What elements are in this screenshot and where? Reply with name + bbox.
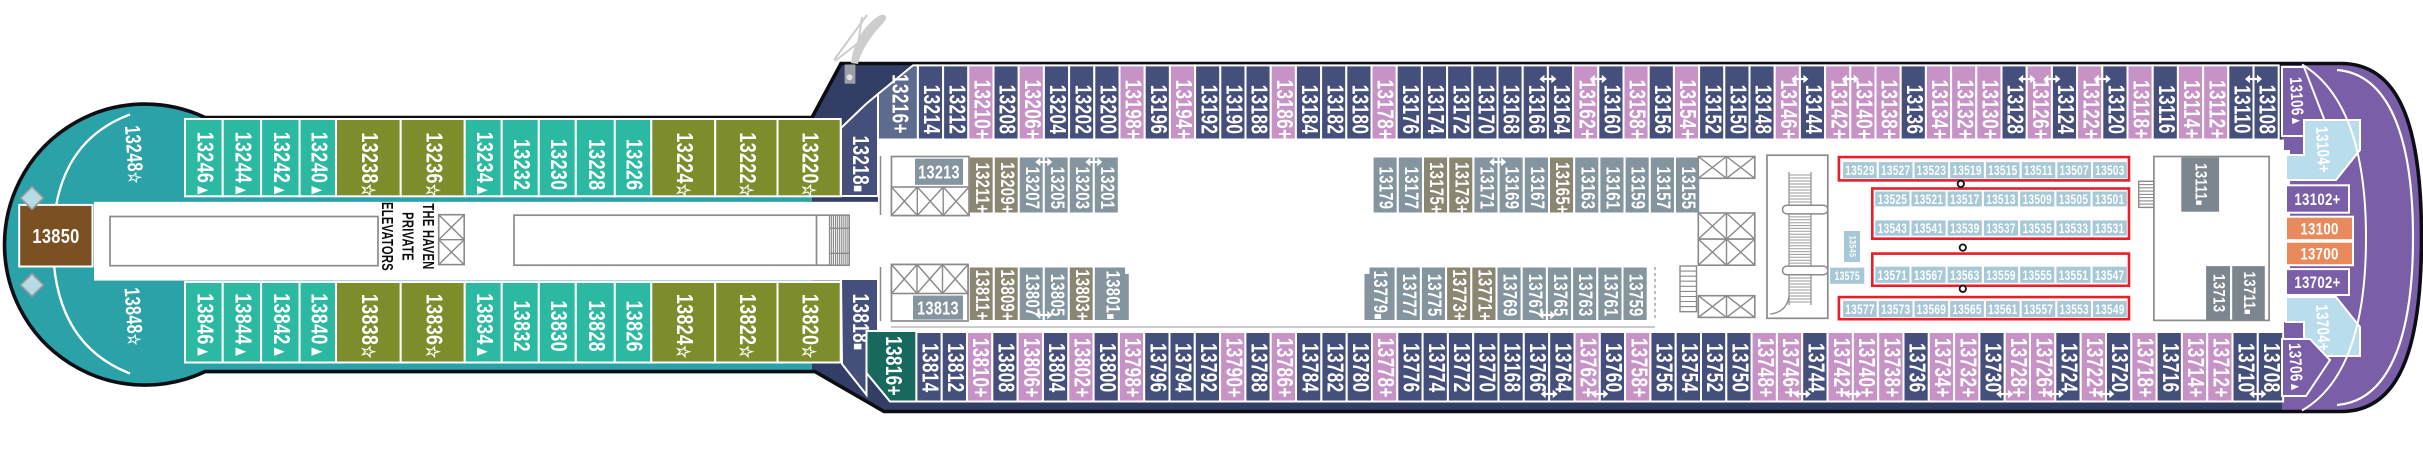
- svg-text:13543: 13543: [1878, 220, 1907, 236]
- svg-text:13523: 13523: [1917, 163, 1946, 179]
- svg-text:13838☆: 13838☆: [356, 294, 382, 359]
- svg-text:13150: 13150: [1725, 85, 1750, 134]
- svg-text:13710: 13710: [2233, 343, 2258, 392]
- svg-text:13824☆: 13824☆: [671, 294, 697, 359]
- svg-text:13165+: 13165+: [1552, 162, 1575, 214]
- svg-text:13756: 13756: [1651, 343, 1676, 392]
- svg-text:13798+: 13798+: [1119, 338, 1144, 398]
- svg-text:13738+: 13738+: [1879, 338, 1904, 398]
- svg-text:13561: 13561: [1988, 301, 2017, 317]
- svg-text:13167: 13167: [1526, 167, 1549, 210]
- svg-text:13770: 13770: [1474, 343, 1499, 392]
- svg-text:13521: 13521: [1914, 191, 1943, 207]
- svg-text:13126+: 13126+: [2027, 80, 2052, 140]
- svg-text:13767: 13767: [1524, 274, 1547, 317]
- svg-text:13809+: 13809+: [996, 269, 1019, 321]
- svg-text:13170: 13170: [1473, 85, 1498, 134]
- svg-text:13702+: 13702+: [2294, 274, 2340, 293]
- svg-text:13832: 13832: [508, 300, 534, 351]
- svg-text:ELEVATORS: ELEVATORS: [379, 202, 396, 271]
- svg-text:13711■: 13711■: [2239, 272, 2258, 315]
- svg-text:13804: 13804: [1044, 343, 1069, 393]
- svg-text:13511: 13511: [2024, 163, 2053, 179]
- svg-text:13166: 13166: [1523, 85, 1548, 134]
- svg-text:13763: 13763: [1575, 274, 1598, 317]
- svg-text:13160: 13160: [1599, 85, 1624, 134]
- svg-text:13208: 13208: [994, 85, 1019, 134]
- svg-text:13136: 13136: [1901, 85, 1926, 134]
- svg-text:13242▲: 13242▲: [268, 132, 294, 198]
- svg-text:13212: 13212: [944, 85, 969, 134]
- svg-text:13513: 13513: [1986, 191, 2015, 207]
- svg-text:13844▲: 13844▲: [230, 293, 256, 359]
- svg-text:13549: 13549: [2095, 301, 2124, 317]
- svg-text:13575: 13575: [1834, 271, 1859, 283]
- svg-text:13111■: 13111■: [2191, 163, 2210, 206]
- svg-text:13174: 13174: [1422, 85, 1447, 135]
- svg-text:13130+: 13130+: [1977, 80, 2002, 140]
- svg-text:13182: 13182: [1322, 85, 1347, 134]
- svg-text:13765: 13765: [1549, 274, 1572, 317]
- svg-text:13122+: 13122+: [2078, 80, 2103, 140]
- svg-text:PRIVATE: PRIVATE: [399, 212, 416, 261]
- svg-text:13734+: 13734+: [1929, 338, 1954, 398]
- svg-text:13716: 13716: [2157, 343, 2182, 392]
- svg-text:13805: 13805: [1046, 274, 1069, 317]
- svg-text:13238☆: 13238☆: [356, 132, 382, 197]
- svg-text:13772: 13772: [1448, 343, 1473, 392]
- svg-text:13571: 13571: [1878, 267, 1907, 283]
- svg-text:13555: 13555: [2023, 267, 2052, 283]
- svg-text:13803+: 13803+: [1071, 269, 1094, 321]
- svg-text:13720: 13720: [2107, 343, 2132, 392]
- svg-text:13102+: 13102+: [2294, 191, 2340, 210]
- svg-text:13175+: 13175+: [1426, 162, 1449, 214]
- svg-text:13563: 13563: [1950, 267, 1979, 283]
- svg-text:13134+: 13134+: [1926, 80, 1951, 140]
- svg-text:13766: 13766: [1524, 343, 1549, 392]
- svg-text:13176: 13176: [1397, 85, 1422, 134]
- svg-text:13836☆: 13836☆: [421, 294, 447, 359]
- svg-text:13802+: 13802+: [1069, 338, 1094, 398]
- svg-text:13830: 13830: [545, 300, 571, 351]
- svg-text:13200: 13200: [1095, 85, 1120, 134]
- svg-text:13525: 13525: [1878, 191, 1907, 207]
- svg-text:13531: 13531: [2095, 220, 2124, 236]
- svg-text:13204: 13204: [1044, 85, 1069, 135]
- svg-text:13224☆: 13224☆: [671, 132, 697, 197]
- svg-text:13232: 13232: [508, 139, 534, 190]
- svg-text:13773+: 13773+: [1449, 269, 1472, 321]
- svg-text:13577: 13577: [1845, 301, 1874, 317]
- svg-text:13168: 13168: [1498, 85, 1523, 134]
- svg-text:13834▲: 13834▲: [471, 293, 497, 359]
- svg-text:13155: 13155: [1678, 167, 1701, 210]
- svg-text:13801■: 13801■: [1102, 271, 1125, 320]
- svg-text:13718+: 13718+: [2132, 338, 2157, 398]
- svg-text:13775: 13775: [1423, 274, 1446, 317]
- svg-text:13213: 13213: [918, 162, 960, 183]
- svg-text:13750: 13750: [1727, 343, 1752, 392]
- svg-text:13724: 13724: [2056, 343, 2081, 393]
- svg-text:13814: 13814: [917, 343, 942, 393]
- svg-text:13846▲: 13846▲: [192, 293, 218, 359]
- svg-text:13188: 13188: [1246, 85, 1271, 134]
- svg-text:13138+: 13138+: [1876, 80, 1901, 140]
- svg-text:13736: 13736: [1904, 343, 1929, 392]
- svg-text:13740+: 13740+: [1853, 338, 1878, 398]
- svg-text:13120: 13120: [2103, 85, 2128, 134]
- svg-text:13240▲: 13240▲: [306, 132, 332, 198]
- svg-text:13140+: 13140+: [1851, 80, 1876, 140]
- svg-text:13196: 13196: [1145, 85, 1170, 134]
- svg-text:13177: 13177: [1400, 167, 1423, 210]
- svg-text:13553: 13553: [2059, 301, 2088, 317]
- svg-text:13746+: 13746+: [1778, 338, 1803, 398]
- svg-text:13764: 13764: [1550, 343, 1575, 393]
- svg-text:13146+: 13146+: [1775, 80, 1800, 140]
- svg-text:13535: 13535: [2023, 220, 2052, 236]
- svg-text:13186+: 13186+: [1271, 80, 1296, 140]
- svg-text:13790+: 13790+: [1221, 338, 1246, 398]
- svg-text:13230: 13230: [545, 139, 571, 190]
- svg-text:13569: 13569: [1917, 301, 1946, 317]
- svg-text:13726+: 13726+: [2031, 338, 2056, 398]
- svg-text:13168: 13168: [1499, 343, 1524, 392]
- svg-text:13505: 13505: [2059, 191, 2088, 207]
- svg-text:13539: 13539: [1950, 220, 1979, 236]
- svg-text:13744: 13744: [1803, 343, 1828, 393]
- svg-text:13545: 13545: [1847, 236, 1857, 258]
- svg-text:13507: 13507: [2059, 163, 2088, 179]
- svg-text:13816+: 13816+: [880, 336, 905, 396]
- svg-text:13114+: 13114+: [2178, 80, 2203, 139]
- svg-text:13533: 13533: [2059, 220, 2088, 236]
- svg-text:13184: 13184: [1296, 85, 1321, 135]
- svg-text:13840▲: 13840▲: [306, 293, 332, 359]
- svg-text:13771+: 13771+: [1474, 269, 1497, 321]
- svg-text:13728+: 13728+: [2005, 338, 2030, 398]
- svg-text:13826: 13826: [621, 300, 647, 351]
- svg-text:13234▲: 13234▲: [471, 132, 497, 198]
- svg-text:13777: 13777: [1398, 274, 1421, 317]
- svg-text:13180: 13180: [1347, 85, 1372, 134]
- svg-text:13162+: 13162+: [1574, 80, 1599, 140]
- svg-text:13118+: 13118+: [2128, 80, 2153, 139]
- svg-text:13842▲: 13842▲: [268, 293, 294, 359]
- svg-text:13808: 13808: [993, 343, 1018, 392]
- svg-text:13754: 13754: [1676, 343, 1701, 393]
- svg-text:13761: 13761: [1600, 274, 1623, 317]
- svg-text:13228: 13228: [583, 139, 609, 190]
- svg-text:13529: 13529: [1845, 163, 1874, 179]
- svg-text:13788: 13788: [1246, 343, 1271, 392]
- svg-text:13171: 13171: [1476, 167, 1499, 210]
- svg-text:13205: 13205: [1046, 167, 1069, 210]
- svg-text:13762+: 13762+: [1575, 338, 1600, 398]
- svg-text:13108: 13108: [2254, 85, 2279, 134]
- svg-text:13194+: 13194+: [1170, 80, 1195, 140]
- svg-text:13157: 13157: [1652, 167, 1675, 210]
- svg-text:13565: 13565: [1952, 301, 1981, 317]
- svg-text:13760: 13760: [1600, 343, 1625, 392]
- svg-text:13515: 13515: [1988, 163, 2017, 179]
- svg-text:13758+: 13758+: [1626, 338, 1651, 398]
- svg-text:13759: 13759: [1625, 274, 1648, 317]
- svg-text:13236☆: 13236☆: [421, 132, 447, 197]
- svg-text:13244▲: 13244▲: [230, 132, 256, 198]
- svg-text:13811+: 13811+: [971, 270, 994, 321]
- svg-text:13796: 13796: [1145, 343, 1170, 392]
- svg-text:13712+: 13712+: [2208, 338, 2233, 398]
- svg-text:13210+: 13210+: [969, 80, 994, 140]
- svg-text:13742+: 13742+: [1828, 338, 1853, 398]
- svg-text:13714+: 13714+: [2182, 338, 2207, 398]
- svg-text:13203: 13203: [1071, 167, 1094, 210]
- svg-text:13541: 13541: [1914, 220, 1943, 236]
- svg-text:13148: 13148: [1750, 85, 1775, 134]
- svg-text:13806+: 13806+: [1018, 338, 1043, 398]
- svg-text:13537: 13537: [1986, 220, 2015, 236]
- svg-text:13828: 13828: [583, 300, 609, 351]
- svg-text:13202: 13202: [1070, 85, 1095, 134]
- svg-text:13850: 13850: [32, 224, 79, 247]
- svg-text:13179: 13179: [1375, 167, 1398, 210]
- svg-text:13547: 13547: [2095, 267, 2124, 283]
- svg-text:13813: 13813: [917, 298, 959, 319]
- svg-text:13246▲: 13246▲: [192, 132, 218, 198]
- svg-text:13128: 13128: [2002, 85, 2027, 134]
- svg-text:13730: 13730: [1980, 343, 2005, 392]
- svg-text:13509: 13509: [2023, 191, 2052, 207]
- svg-text:13154+: 13154+: [1674, 80, 1699, 140]
- svg-text:13110: 13110: [2229, 85, 2254, 133]
- svg-text:13152: 13152: [1700, 85, 1725, 134]
- svg-text:13100: 13100: [2300, 220, 2338, 239]
- svg-text:13800: 13800: [1094, 343, 1119, 392]
- svg-text:13190: 13190: [1221, 85, 1246, 134]
- svg-text:13820☆: 13820☆: [797, 294, 823, 359]
- svg-text:13124: 13124: [2052, 85, 2077, 135]
- svg-text:13527: 13527: [1881, 163, 1910, 179]
- svg-text:13222☆: 13222☆: [734, 132, 760, 197]
- svg-text:13201: 13201: [1096, 167, 1119, 210]
- svg-text:13551: 13551: [2059, 267, 2088, 283]
- svg-text:13132+: 13132+: [1952, 80, 1977, 140]
- svg-text:13164: 13164: [1548, 85, 1573, 135]
- svg-text:13142+: 13142+: [1826, 80, 1851, 140]
- svg-text:13732+: 13732+: [1955, 338, 1980, 398]
- svg-text:13810+: 13810+: [968, 338, 993, 398]
- svg-text:13207: 13207: [1021, 167, 1044, 210]
- svg-text:13159: 13159: [1627, 167, 1650, 210]
- svg-text:13220☆: 13220☆: [797, 132, 823, 197]
- svg-text:13700: 13700: [2300, 245, 2338, 264]
- svg-text:THE HAVEN: THE HAVEN: [419, 203, 436, 269]
- svg-text:13748+: 13748+: [1752, 338, 1777, 398]
- svg-text:13752: 13752: [1702, 343, 1727, 392]
- svg-text:13214: 13214: [918, 85, 943, 135]
- svg-text:13216+: 13216+: [887, 74, 912, 134]
- svg-text:13782: 13782: [1322, 343, 1347, 392]
- svg-text:13192: 13192: [1196, 85, 1221, 134]
- svg-text:13198+: 13198+: [1120, 80, 1145, 140]
- svg-text:13169: 13169: [1501, 167, 1524, 210]
- svg-text:13172: 13172: [1448, 85, 1473, 134]
- svg-text:13178+: 13178+: [1372, 80, 1397, 140]
- svg-text:13780: 13780: [1347, 343, 1372, 392]
- svg-text:13503: 13503: [2095, 163, 2124, 179]
- svg-text:13776: 13776: [1398, 343, 1423, 392]
- svg-text:13722+: 13722+: [2081, 338, 2106, 398]
- svg-text:13209+: 13209+: [996, 162, 1019, 214]
- svg-text:13104+: 13104+: [2312, 126, 2333, 173]
- svg-text:13822☆: 13822☆: [734, 294, 760, 359]
- svg-text:13786+: 13786+: [1271, 338, 1296, 398]
- svg-text:13774: 13774: [1423, 343, 1448, 393]
- svg-text:13173+: 13173+: [1451, 162, 1474, 214]
- svg-text:13708: 13708: [2258, 343, 2283, 392]
- svg-text:13559: 13559: [1986, 267, 2015, 283]
- svg-text:13567: 13567: [1914, 267, 1943, 283]
- svg-text:13519: 13519: [1952, 163, 1981, 179]
- svg-text:13792: 13792: [1195, 343, 1220, 392]
- svg-text:13557: 13557: [2024, 301, 2053, 317]
- svg-text:13112+: 13112+: [2204, 80, 2229, 139]
- svg-text:13218■: 13218■: [847, 136, 872, 193]
- svg-text:13713: 13713: [2209, 274, 2228, 312]
- svg-text:13163: 13163: [1577, 167, 1600, 210]
- svg-text:13226: 13226: [621, 139, 647, 190]
- svg-text:13807: 13807: [1021, 274, 1044, 317]
- svg-text:13158+: 13158+: [1624, 80, 1649, 140]
- svg-text:13161: 13161: [1602, 167, 1625, 210]
- svg-text:13144: 13144: [1800, 85, 1825, 135]
- svg-text:13812: 13812: [942, 343, 967, 392]
- svg-text:13206+: 13206+: [1019, 80, 1044, 140]
- svg-text:13501: 13501: [2095, 191, 2124, 207]
- svg-text:13794: 13794: [1170, 343, 1195, 393]
- svg-text:13211+: 13211+: [971, 163, 994, 214]
- svg-text:13116: 13116: [2153, 85, 2178, 133]
- svg-text:13784: 13784: [1297, 343, 1322, 393]
- svg-text:13779■: 13779■: [1370, 271, 1393, 320]
- svg-text:13778+: 13778+: [1373, 338, 1398, 398]
- svg-text:13517: 13517: [1950, 191, 1979, 207]
- svg-text:13573: 13573: [1881, 301, 1910, 317]
- svg-text:13769: 13769: [1499, 274, 1522, 317]
- svg-text:13156: 13156: [1649, 85, 1674, 134]
